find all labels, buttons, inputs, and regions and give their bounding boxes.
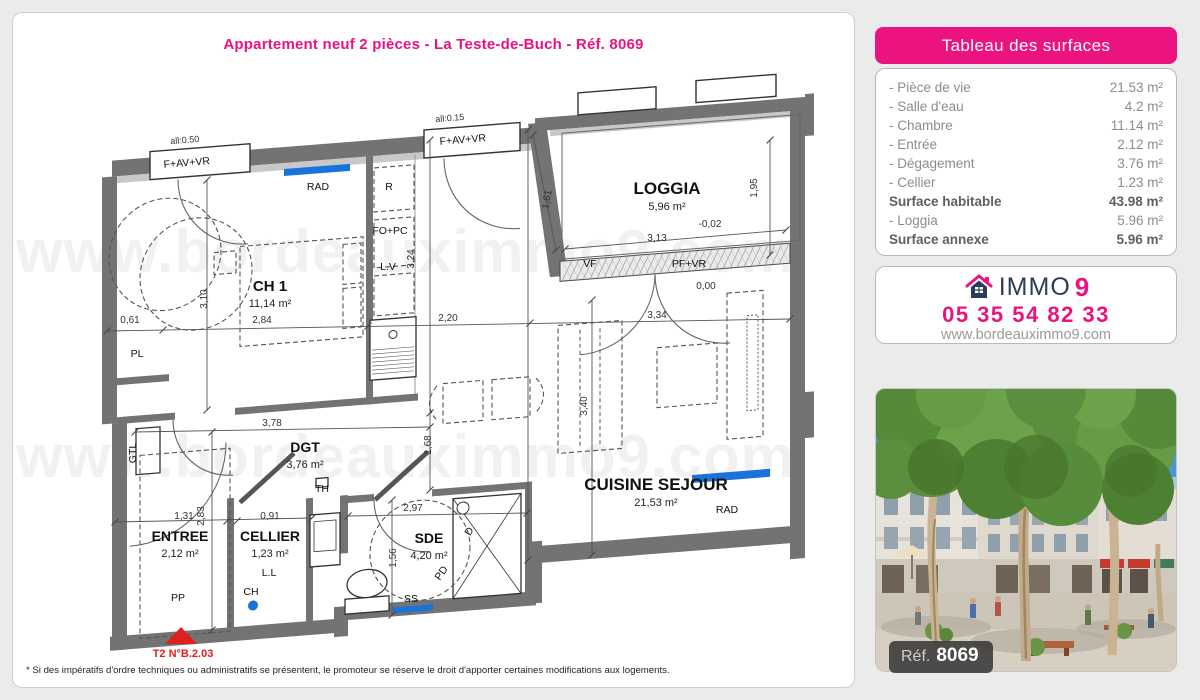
surface-row: - Chambre11.14 m²	[889, 116, 1163, 135]
surface-row: - Cellier1.23 m²	[889, 173, 1163, 192]
photo-illustration	[876, 389, 1176, 672]
surface-row: - Dégagement3.76 m²	[889, 154, 1163, 173]
agency-card: IMMO9 05 35 54 82 33 www.bordeauximmo9.c…	[875, 266, 1177, 344]
ref-label: Réf.	[901, 648, 930, 665]
disclaimer-text: * Si des impératifs d'ordre techniques o…	[26, 665, 846, 676]
surface-row: - Pièce de vie21.53 m²	[889, 78, 1163, 97]
brand-9: 9	[1075, 272, 1089, 303]
surface-row: Surface annexe5.96 m²	[889, 230, 1163, 249]
surface-row: - Loggia5.96 m²	[889, 211, 1163, 230]
brand-immo: IMMO	[999, 273, 1071, 302]
surface-row: - Entrée2.12 m²	[889, 135, 1163, 154]
surface-table: - Pièce de vie21.53 m²- Salle d'eau4.2 m…	[875, 68, 1177, 256]
surface-table-header: Tableau des surfaces	[875, 27, 1177, 64]
surface-row: Surface habitable43.98 m²	[889, 192, 1163, 211]
ref-value: 8069	[936, 645, 978, 666]
page-title: Appartement neuf 2 pièces - La Teste-de-…	[12, 36, 855, 53]
agency-phone[interactable]: 05 35 54 82 33	[876, 302, 1176, 327]
agency-logo: IMMO9	[876, 272, 1176, 302]
house-icon	[963, 272, 995, 302]
surface-row: - Salle d'eau4.2 m²	[889, 97, 1163, 116]
photo-ref-badge: Réf.8069	[889, 641, 993, 673]
page: Appartement neuf 2 pièces - La Teste-de-…	[0, 0, 1200, 700]
agency-website-link[interactable]: www.bordeauximmo9.com	[876, 327, 1176, 343]
floor-plan-panel	[12, 12, 855, 688]
property-photo	[875, 388, 1177, 672]
